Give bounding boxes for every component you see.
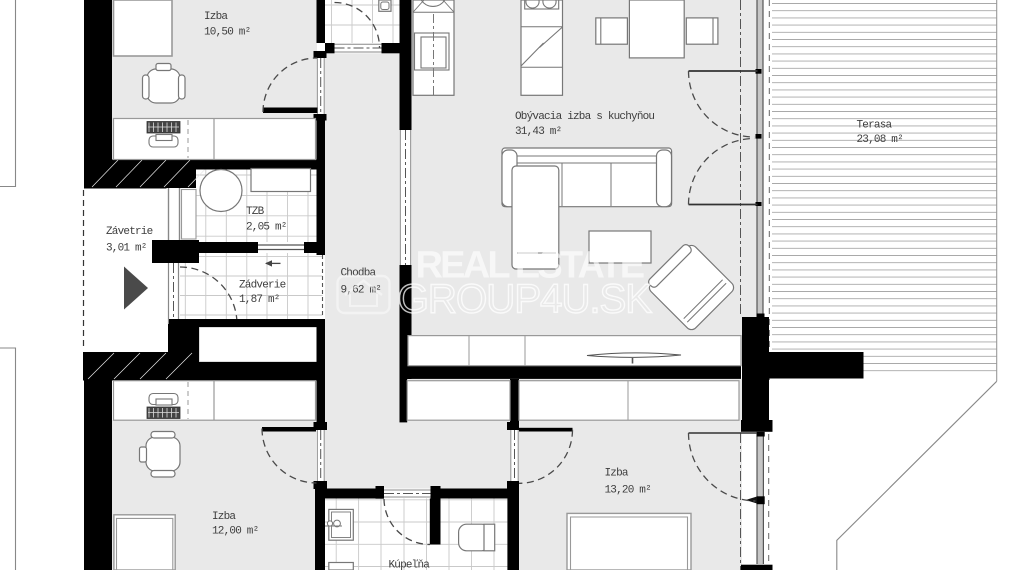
svg-text:10,50 m²: 10,50 m² [204,27,250,39]
svg-text:31,43 m²: 31,43 m² [515,126,561,138]
svg-text:Zádverie: Zádverie [239,280,286,292]
svg-text:Izba: Izba [212,511,236,523]
svg-text:Izba: Izba [605,468,629,480]
svg-text:Terasa: Terasa [857,120,893,132]
svg-text:12,00 m²: 12,00 m² [212,526,258,538]
svg-text:Závetrie: Závetrie [106,226,153,238]
svg-text:Chodba: Chodba [341,268,377,280]
svg-text:Obývacia izba s kuchyňou: Obývacia izba s kuchyňou [515,111,654,123]
svg-text:13,20 m²: 13,20 m² [605,485,651,497]
svg-text:Kúpeľňa: Kúpeľňa [389,560,431,570]
svg-text:GROUP4U.SK: GROUP4U.SK [398,276,653,322]
svg-text:TZB: TZB [246,206,265,218]
svg-text:23,08 m²: 23,08 m² [857,134,903,146]
svg-text:2,05 m²: 2,05 m² [246,222,287,234]
svg-text:1,87 m²: 1,87 m² [239,294,280,306]
svg-text:3,01 m²: 3,01 m² [106,243,147,255]
svg-text:Izba: Izba [204,11,228,23]
